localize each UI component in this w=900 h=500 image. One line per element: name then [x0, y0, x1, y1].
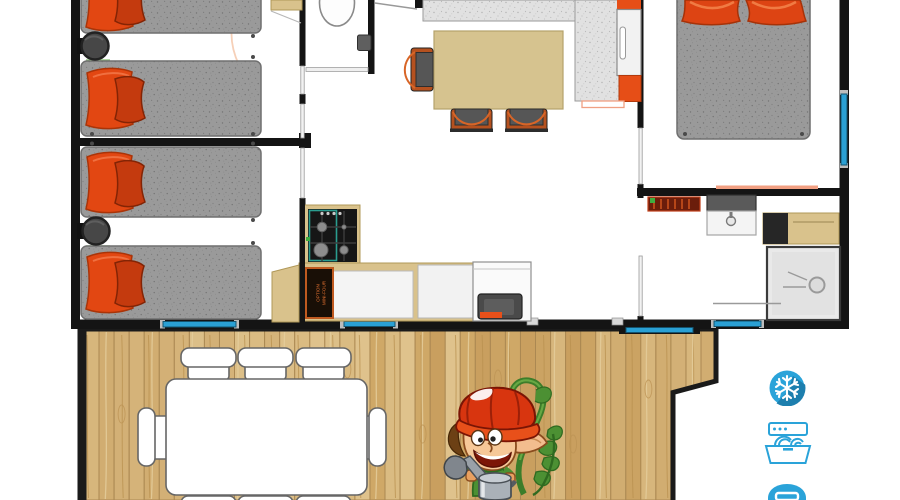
- svg-text:MINI-FOUR: MINI-FOUR: [322, 280, 327, 305]
- svg-text:OPTION: OPTION: [316, 284, 321, 302]
